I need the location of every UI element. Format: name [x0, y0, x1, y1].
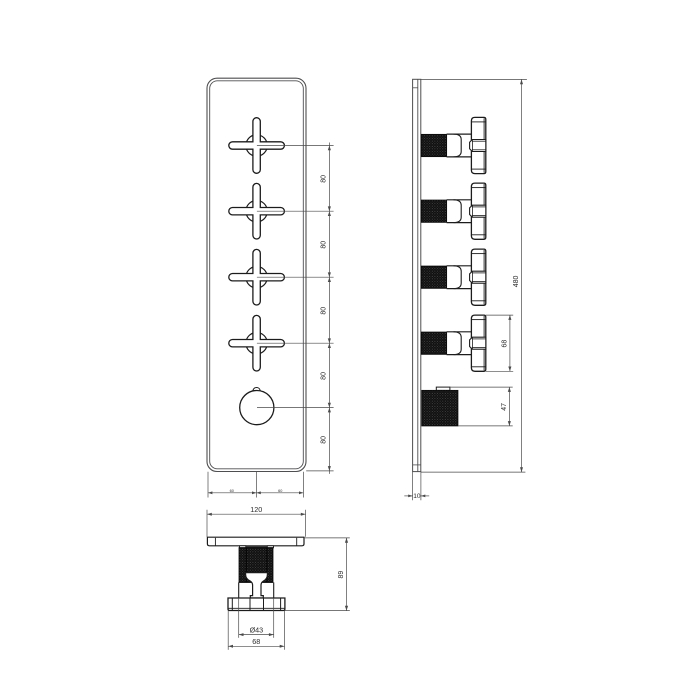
- svg-text:60: 60: [278, 489, 282, 493]
- svg-text:10: 10: [413, 493, 421, 500]
- svg-text:68: 68: [501, 340, 508, 348]
- svg-text:80: 80: [321, 175, 328, 183]
- svg-text:68: 68: [252, 637, 260, 646]
- svg-text:60: 60: [230, 489, 234, 493]
- svg-text:120: 120: [250, 505, 262, 514]
- svg-text:89: 89: [338, 571, 345, 579]
- svg-text:480: 480: [513, 275, 520, 287]
- svg-text:80: 80: [321, 241, 328, 249]
- svg-text:80: 80: [321, 307, 328, 315]
- svg-text:80: 80: [321, 372, 328, 380]
- svg-text:Ø43: Ø43: [250, 625, 264, 634]
- svg-text:47: 47: [501, 403, 508, 411]
- svg-text:80: 80: [321, 436, 328, 444]
